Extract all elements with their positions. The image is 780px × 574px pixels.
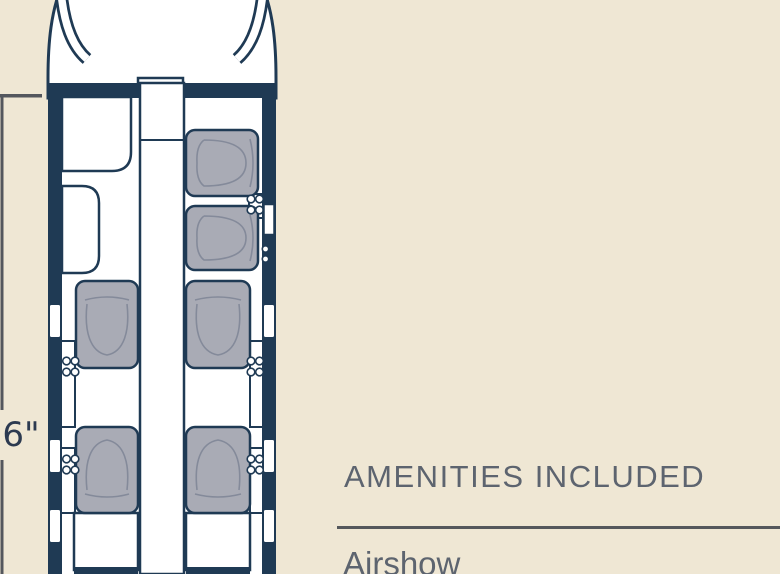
seat-aft-left xyxy=(76,427,138,513)
seat-aft-right xyxy=(186,427,250,513)
cabin-window xyxy=(50,305,60,337)
cabin-window xyxy=(264,510,274,542)
dimension-tick xyxy=(0,94,42,98)
seat-forward-right-1 xyxy=(186,130,258,196)
cabin-window xyxy=(264,305,274,337)
forward-cabinet xyxy=(62,186,99,273)
divider-rule xyxy=(337,526,780,529)
cabin-window xyxy=(264,440,274,472)
cabin-window xyxy=(50,510,60,542)
amenity-item-airshow: Airshow xyxy=(343,547,460,574)
dimension-line xyxy=(1,460,4,574)
seat-mid-right xyxy=(186,281,250,368)
emergency-exit-marker xyxy=(264,204,275,235)
seat-mid-left xyxy=(76,281,138,368)
aft-console-right xyxy=(186,513,250,574)
galley-unit xyxy=(62,97,131,171)
seat-forward-right-2 xyxy=(186,206,258,270)
dimension-annotation: '6" xyxy=(0,94,42,574)
dimension-line xyxy=(1,97,4,410)
center-console xyxy=(140,83,184,574)
amenities-heading: AMENITIES INCLUDED xyxy=(344,461,705,494)
cabin-window xyxy=(50,440,60,472)
screenshot-root: '6" AMENITIES INCLUDED Airshow xyxy=(0,0,780,574)
dimension-label: '6" xyxy=(0,415,40,455)
aft-console-left xyxy=(74,513,138,574)
